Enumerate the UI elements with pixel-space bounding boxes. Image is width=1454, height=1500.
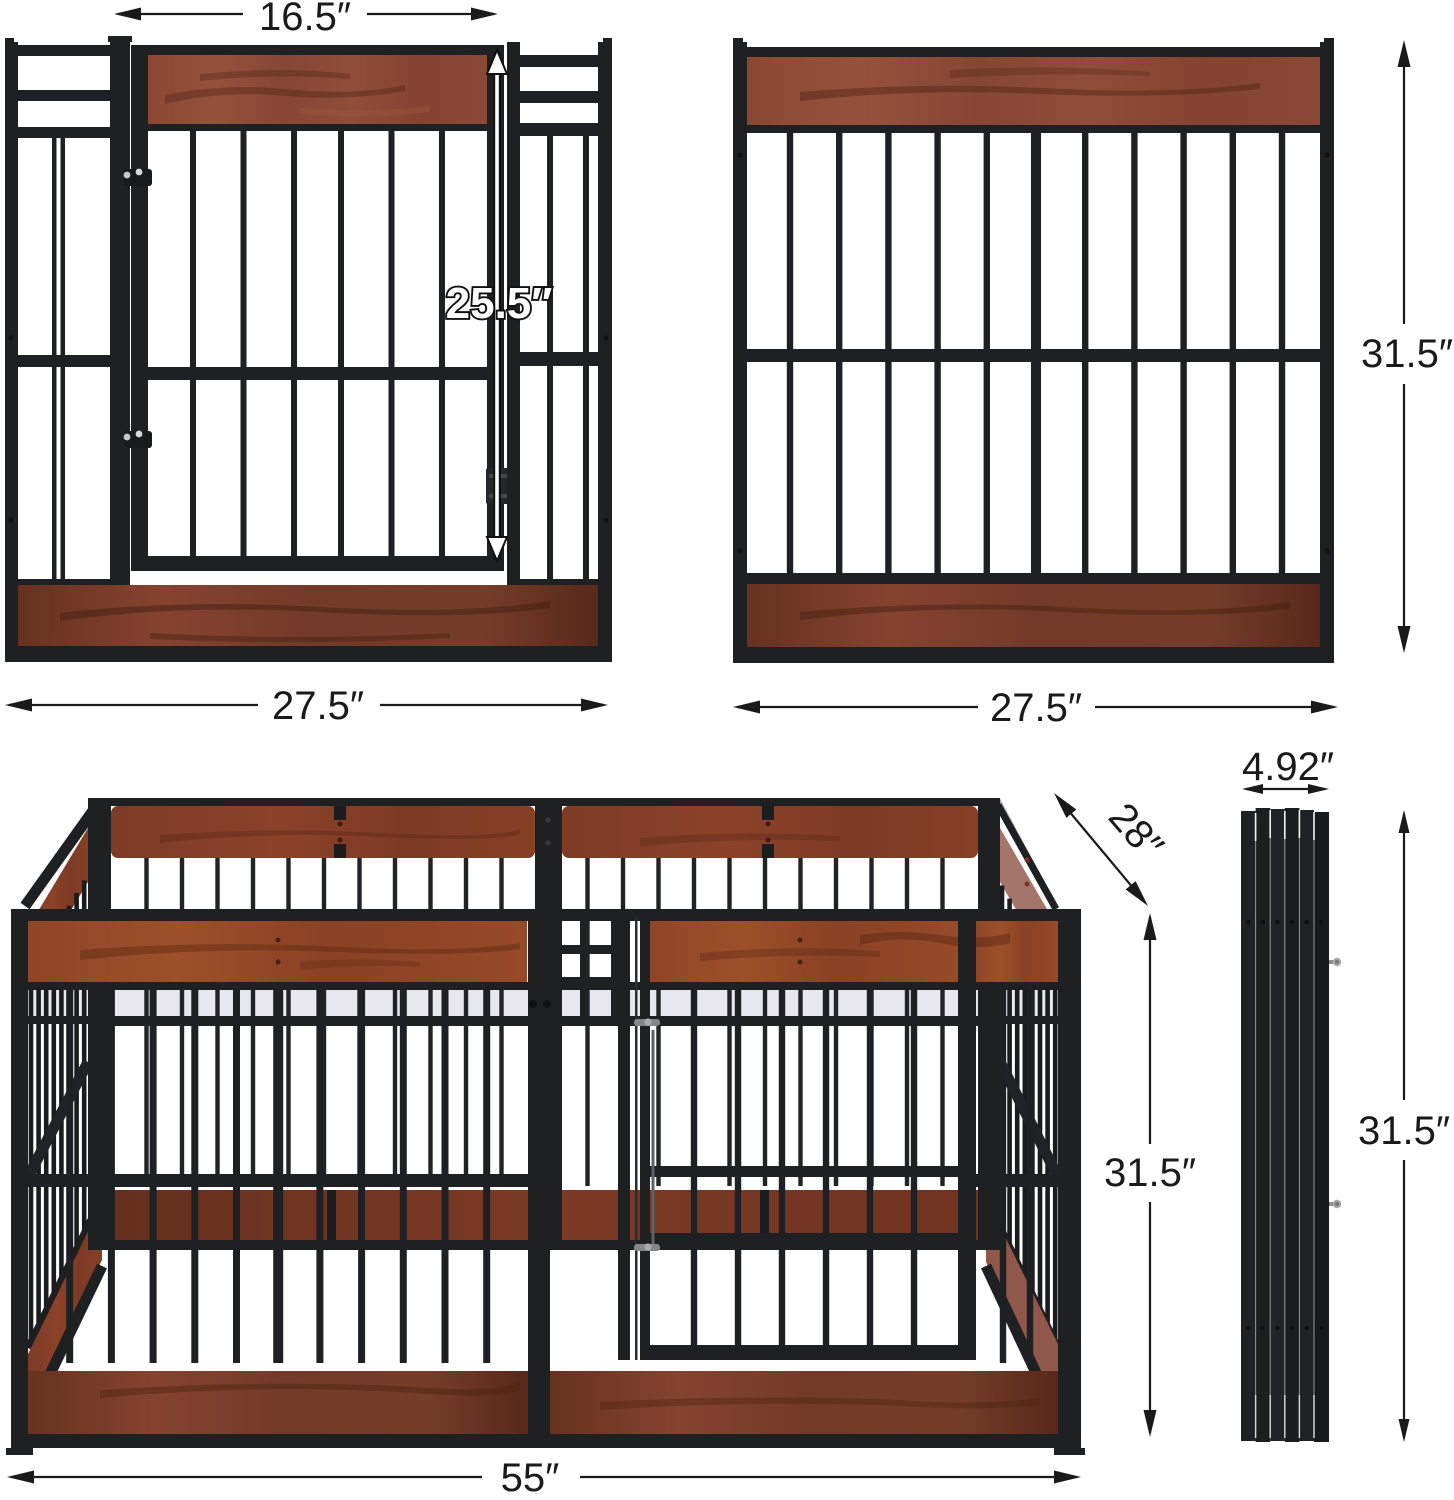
svg-text:4.92″: 4.92″: [1242, 745, 1334, 789]
svg-text:27.5″: 27.5″: [272, 684, 364, 728]
svg-text:31.5″: 31.5″: [1361, 332, 1453, 376]
svg-text:31.5″: 31.5″: [1104, 1151, 1196, 1195]
svg-text:25.5″: 25.5″: [446, 279, 553, 328]
svg-text:16.5″: 16.5″: [259, 0, 351, 39]
svg-text:31.5″: 31.5″: [1358, 1109, 1450, 1153]
svg-text:27.5″: 27.5″: [990, 686, 1082, 730]
svg-text:55″: 55″: [501, 1456, 560, 1500]
svg-text:28″: 28″: [1100, 795, 1172, 868]
